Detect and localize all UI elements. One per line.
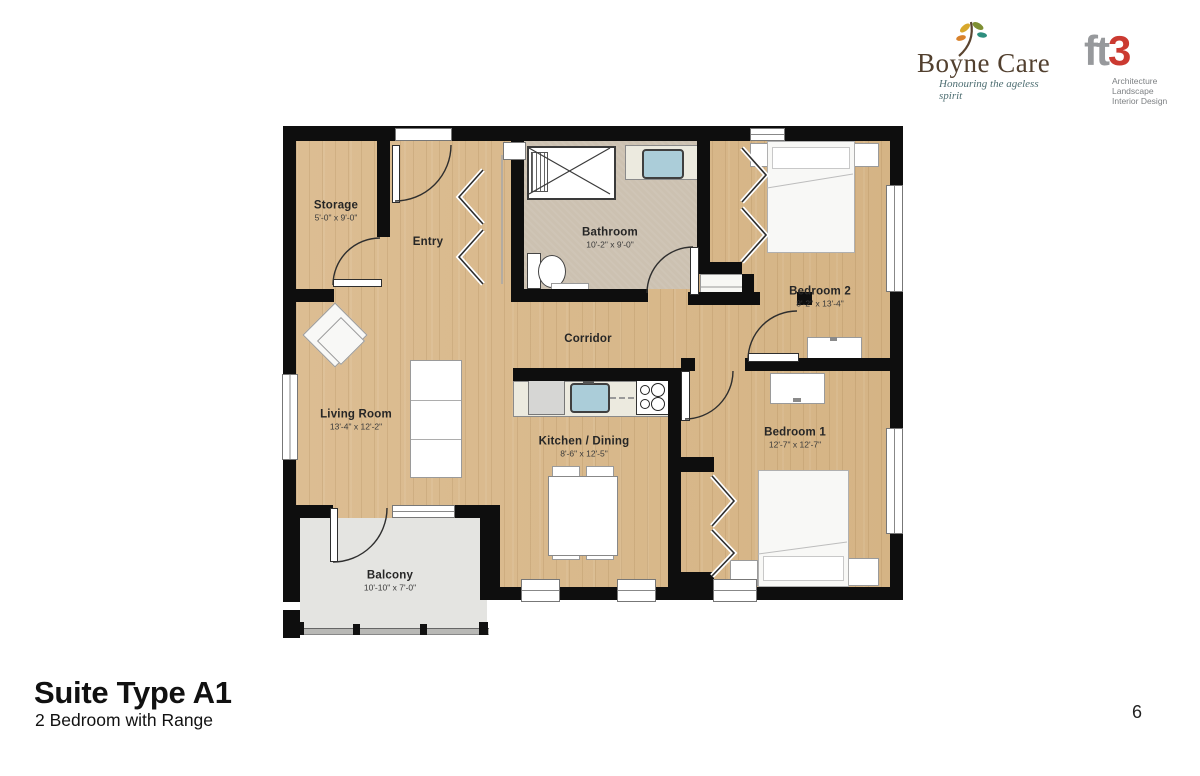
ft3-logo: ft3 Architecture Landscape Interior Desi… [1080,30,1180,110]
wall-niche [503,142,526,160]
bathroom-door [690,247,699,295]
railing-post [420,624,427,635]
page: { "logos": { "boyne": { "name": "Boyne C… [0,0,1200,776]
page-title: Suite Type A1 [34,676,232,709]
room-label-entry: Entry [413,236,443,248]
railing-post [479,622,488,635]
balcony-railing [298,628,489,635]
dining-table [548,476,618,556]
dresser-knob [793,398,801,402]
kitchen-sink [570,383,610,413]
wall [681,457,714,472]
bedroom2-door [748,353,799,362]
floor-plan: Storage 5'-0" x 9'-0" Entry Bathroom 10'… [280,124,908,644]
wall [283,505,300,602]
shower-seat [531,152,548,192]
wall [283,610,300,638]
wall [377,141,390,237]
wall [296,289,334,302]
boyne-care-logo: Boyne Care Honouring the ageless spirit [905,24,1055,96]
page-subtitle: 2 Bedroom with Range [35,710,213,731]
refrigerator [528,380,565,415]
wall [511,289,648,302]
ft3-service-interior-design: Interior Design [1112,96,1167,106]
room-label-storage: Storage 5'-0" x 9'-0" [314,200,358,223]
wall [697,141,710,262]
window-living-room [282,374,298,460]
window-balcony [392,505,455,518]
dresser-knob [830,337,837,341]
wall [480,505,500,600]
bedroom1-door [681,371,690,421]
railing-post [353,624,360,635]
window-bedroom1 [886,428,903,534]
wall [513,368,681,381]
ft3-service-landscape: Landscape [1112,86,1154,96]
nightstand [847,558,879,586]
sofa [410,360,462,478]
wall [681,572,714,587]
room-label-corridor: Corridor [564,333,612,345]
entry-door [392,145,400,203]
storage-door [333,279,382,287]
room-label-balcony: Balcony 10'-10" x 7'-0" [364,570,416,593]
window-bedroom2-top [750,128,785,141]
page-number: 6 [1132,702,1142,723]
counter-dash [610,397,634,399]
entry-door-opening [395,128,452,141]
wall [296,505,333,518]
window-kitchen-1 [521,579,560,602]
boyne-care-wordmark: Boyne Care [917,48,1050,79]
nightstand [853,143,879,167]
room-label-kitchen-dining: Kitchen / Dining 8'-6" x 12'-5" [539,436,630,459]
wall [697,262,742,274]
pillow [772,147,850,169]
wall [283,126,903,141]
range-stove [636,379,669,415]
wall [668,381,681,587]
ft3-service-architecture: Architecture [1112,76,1157,86]
room-label-bedroom2: Bedroom 2 8'-2" x 13'-4" [789,286,851,309]
wall [511,141,524,302]
bathroom-sink [642,149,684,179]
pillow [763,556,844,581]
wall [681,358,695,371]
balcony-door [330,508,338,562]
room-label-bedroom1: Bedroom 1 12'-7" x 12'-7" [764,427,826,450]
room-label-bathroom: Bathroom 10'-2" x 9'-0" [582,227,638,250]
boyne-care-tagline: Honouring the ageless spirit [939,78,1055,102]
room-label-living-room: Living Room 13'-4" x 12'-2" [320,409,392,432]
window-bedroom2 [886,185,903,292]
ft3-wordmark: ft3 [1084,30,1129,72]
window-kitchen-2 [617,579,656,602]
window-bedroom1-bottom [713,579,757,602]
